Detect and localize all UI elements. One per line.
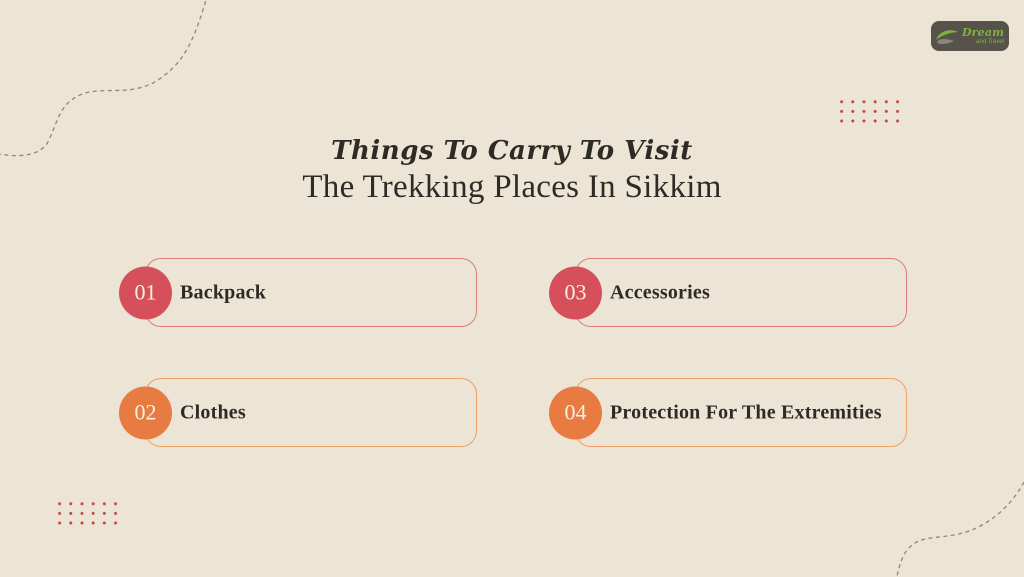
- item-card-accessories: 03 Accessories: [575, 258, 907, 327]
- dot-grid-icon: [52, 497, 120, 527]
- title-line-main: The Trekking Places In Sikkim: [0, 169, 1024, 207]
- item-number: 04: [565, 400, 587, 426]
- leaf-swoosh-icon: [935, 27, 959, 45]
- item-number: 02: [135, 400, 157, 426]
- number-badge: 04: [549, 386, 602, 439]
- number-badge: 01: [119, 266, 172, 319]
- item-card-protection: 04 Protection For The Extremities: [575, 378, 907, 447]
- title-line-script: Things To Carry To Visit: [0, 136, 1024, 167]
- number-badge: 03: [549, 266, 602, 319]
- item-number: 01: [135, 280, 157, 306]
- dashed-wave-icon: [878, 478, 1024, 577]
- item-label: Accessories: [610, 281, 710, 304]
- infographic-slide: Dream and Travel Things To Carry To Visi…: [0, 0, 1024, 577]
- dot-grid-icon: [834, 95, 902, 125]
- item-label: Protection For The Extremities: [610, 401, 882, 424]
- number-badge: 02: [119, 386, 172, 439]
- item-number: 03: [565, 280, 587, 306]
- item-label: Backpack: [180, 281, 266, 304]
- brand-name: Dream: [962, 27, 1004, 38]
- title-block: Things To Carry To Visit The Trekking Pl…: [0, 136, 1024, 207]
- item-card-clothes: 02 Clothes: [145, 378, 477, 447]
- brand-tagline: and Travel: [976, 39, 1004, 45]
- item-card-backpack: 01 Backpack: [145, 258, 477, 327]
- brand-logo: Dream and Travel: [931, 21, 1009, 51]
- item-label: Clothes: [180, 401, 246, 424]
